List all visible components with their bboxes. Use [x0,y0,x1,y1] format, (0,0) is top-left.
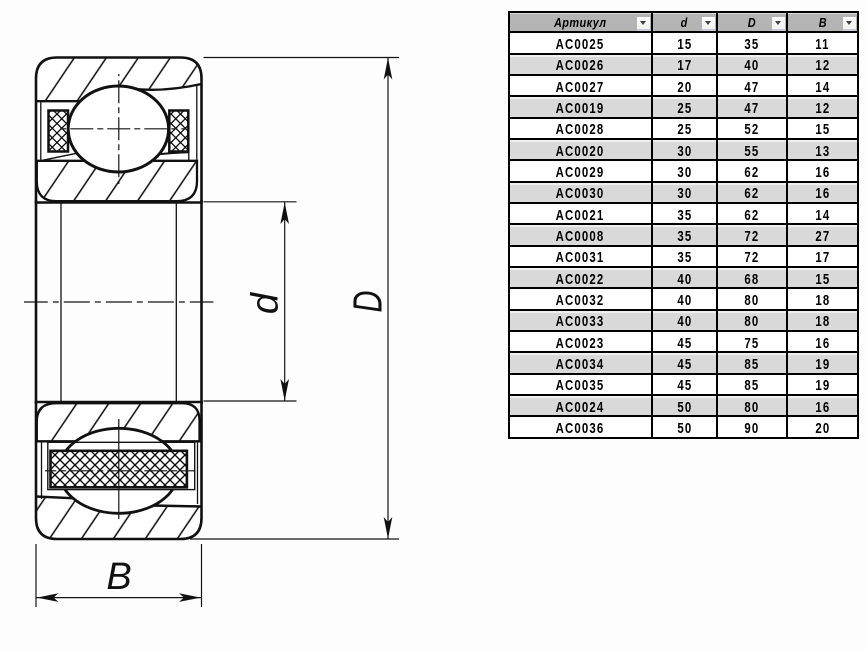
svg-text:d: d [245,291,287,314]
svg-text:B: B [106,556,131,598]
svg-text:D: D [345,291,391,313]
